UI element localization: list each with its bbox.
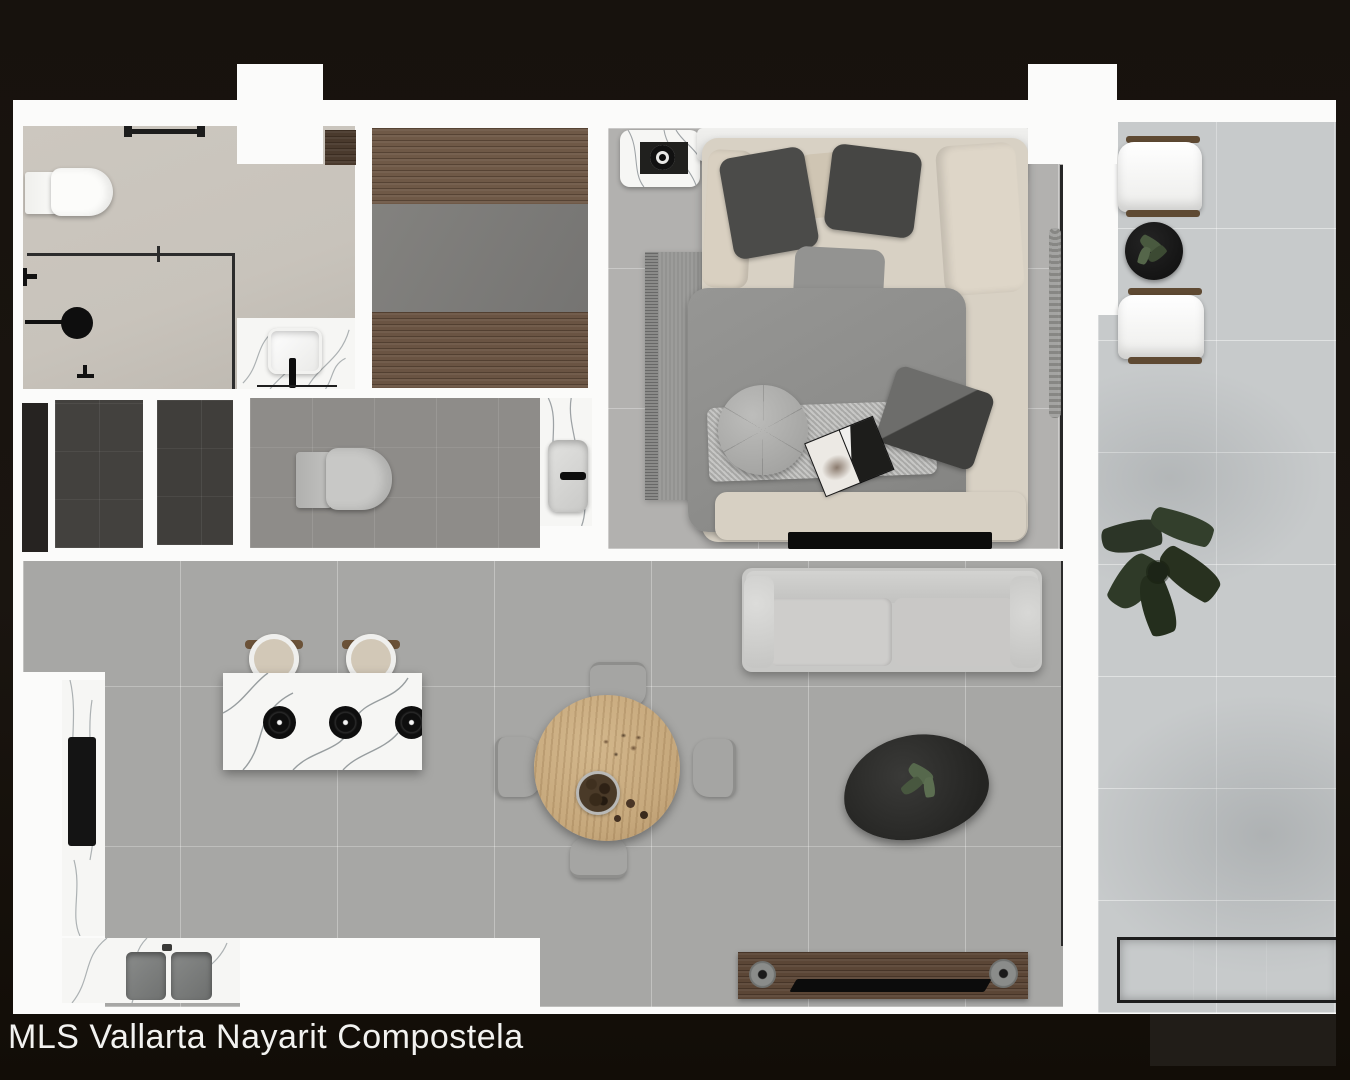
marble-vein-decor bbox=[223, 673, 422, 770]
table-fruit-bowl bbox=[576, 771, 620, 815]
rug-fringe-left bbox=[645, 252, 658, 500]
sofa-seat-right bbox=[894, 598, 1014, 666]
nightstand-left bbox=[620, 130, 700, 187]
lounge-chair-top bbox=[1118, 142, 1202, 212]
table-dried-flowers bbox=[596, 725, 646, 767]
bathroom bbox=[23, 126, 355, 389]
pendant-light bbox=[395, 706, 422, 739]
entry-door bbox=[325, 130, 356, 165]
decor-vinyl bbox=[650, 145, 675, 170]
powder-room bbox=[250, 398, 540, 548]
sink-faucet bbox=[289, 358, 296, 388]
lounge-chair-frame bbox=[1128, 288, 1202, 295]
footer-shade-block bbox=[1150, 1014, 1336, 1066]
kitchen-island bbox=[223, 673, 422, 770]
console-tv bbox=[789, 979, 992, 992]
shower-head bbox=[61, 307, 93, 339]
pillow-dark-left bbox=[718, 145, 820, 260]
toilet-bowl bbox=[51, 168, 113, 216]
dining-chair-right bbox=[693, 739, 736, 797]
table-loose-fruit bbox=[614, 815, 621, 822]
entry-column bbox=[237, 64, 323, 164]
balcony-side-table bbox=[1125, 222, 1183, 280]
closet-shelf-top bbox=[372, 128, 588, 204]
bathroom-vanity bbox=[237, 318, 355, 389]
shower-arm bbox=[25, 320, 65, 324]
utility-room-a bbox=[55, 400, 143, 548]
pillow-dark-right bbox=[823, 143, 923, 239]
towel-bar bbox=[128, 129, 205, 134]
pillow-cream-right bbox=[935, 141, 1025, 296]
floor-plan-canvas: MLS Vallarta Nayarit Compostela bbox=[0, 0, 1350, 1080]
sink-basin-right bbox=[171, 952, 212, 1000]
caption: MLS Vallarta Nayarit Compostela bbox=[8, 1018, 524, 1057]
dining-chair-bottom bbox=[570, 837, 627, 878]
pendant-light bbox=[263, 706, 296, 739]
dining-table bbox=[534, 695, 680, 841]
sofa-arm-left bbox=[744, 576, 774, 668]
sofa-seat-left bbox=[770, 598, 892, 666]
shower-valve-knob bbox=[23, 274, 37, 279]
table-loose-fruit bbox=[640, 811, 648, 819]
closet bbox=[372, 128, 588, 388]
speaker-right bbox=[989, 959, 1018, 988]
towel-bar-end-left bbox=[124, 126, 132, 137]
balcony bbox=[1098, 122, 1336, 1013]
balcony-plant bbox=[1098, 510, 1224, 638]
curtain bbox=[1049, 228, 1061, 418]
table-loose-fruit bbox=[626, 799, 635, 808]
sofa bbox=[742, 568, 1042, 672]
plant-stem-hub bbox=[1148, 562, 1168, 582]
balcony-drain-mat bbox=[1117, 937, 1336, 1003]
bedroom bbox=[608, 128, 1063, 549]
shower-glass-handle bbox=[157, 246, 160, 262]
pouf bbox=[718, 385, 808, 475]
utility-column bbox=[22, 403, 48, 552]
lower-wall-block bbox=[240, 938, 540, 1007]
table-plant bbox=[1137, 246, 1151, 266]
floor-drain-stem bbox=[83, 365, 87, 376]
kitchen-faucet bbox=[162, 944, 172, 951]
speaker-left bbox=[749, 961, 776, 988]
coffee-table bbox=[837, 726, 995, 847]
powder-faucet bbox=[560, 472, 586, 480]
towel-bar-end-right bbox=[197, 126, 205, 137]
shower-glass-horizontal bbox=[27, 253, 235, 256]
powder-vanity bbox=[540, 398, 592, 526]
powder-toilet-bowl bbox=[326, 448, 392, 510]
pendant-light bbox=[329, 706, 362, 739]
closet-shelf-bottom bbox=[372, 312, 588, 388]
closet-panel bbox=[372, 204, 588, 312]
lounge-chair-bottom bbox=[1118, 295, 1204, 359]
lounge-chair-frame bbox=[1128, 357, 1202, 364]
kitchen-counter-bottom bbox=[62, 938, 251, 1003]
lounge-chair-frame bbox=[1126, 210, 1200, 217]
utility-room-b bbox=[157, 400, 233, 545]
kitchen-counter-left-top bbox=[62, 680, 105, 936]
tv-console bbox=[738, 952, 1028, 999]
shower-glass-vertical bbox=[232, 253, 235, 389]
living-area bbox=[23, 561, 1063, 1007]
sink-basin-left bbox=[126, 952, 166, 1000]
cooktop bbox=[68, 737, 96, 846]
sofa-arm-right bbox=[1010, 576, 1040, 668]
vanity-edge-line bbox=[257, 385, 337, 387]
bedroom-balcony-column bbox=[1028, 64, 1117, 164]
living-glass-wall bbox=[1061, 561, 1063, 946]
bedroom-tv bbox=[788, 532, 992, 549]
